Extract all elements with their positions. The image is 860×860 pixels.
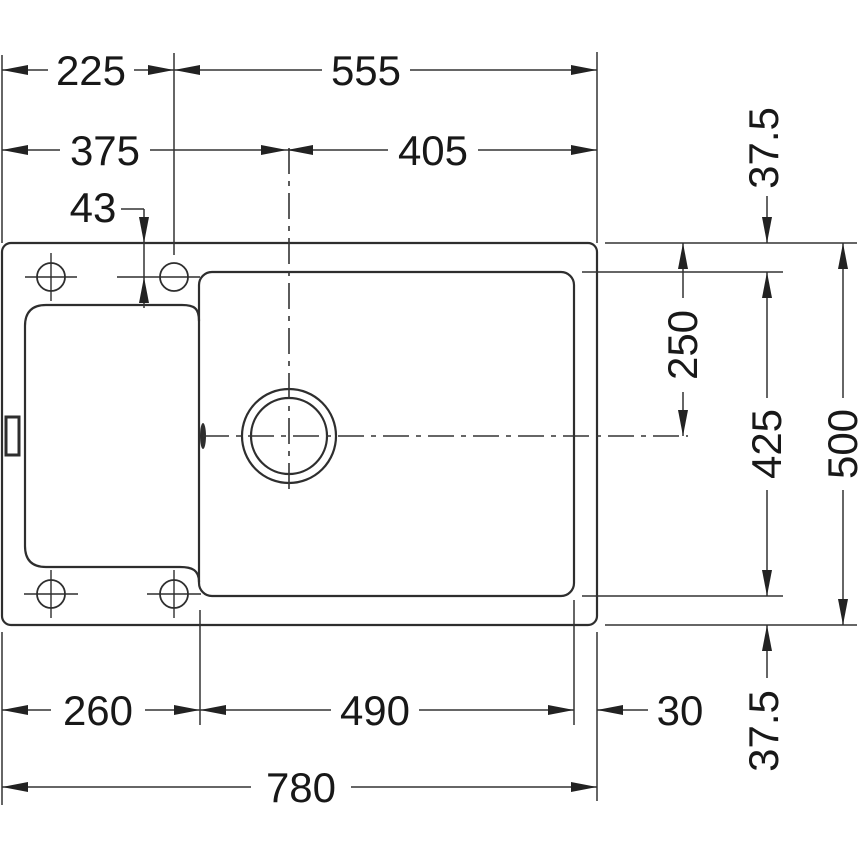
dim-label-37-5-bottom: 37.5 xyxy=(740,690,787,772)
dim-label-30: 30 xyxy=(657,687,704,734)
dim-label-260: 260 xyxy=(63,687,133,734)
dim-label-37-5-top: 37.5 xyxy=(740,107,787,189)
overflow-slot xyxy=(6,417,19,455)
dimension-lines xyxy=(2,70,843,787)
drainer-area xyxy=(25,305,199,582)
main-bowl xyxy=(199,272,574,596)
dim-label-375: 375 xyxy=(70,127,140,174)
dim-label-405: 405 xyxy=(398,127,468,174)
sink-dimension-drawing: 225 555 375 405 43 37.5 250 425 500 37.5… xyxy=(0,0,860,860)
dim-label-500: 500 xyxy=(819,409,860,479)
hole-crosshairs xyxy=(24,253,201,618)
drawing-canvas: 225 555 375 405 43 37.5 250 425 500 37.5… xyxy=(0,0,860,860)
dim-label-780: 780 xyxy=(266,764,336,811)
dim-label-425: 425 xyxy=(743,409,790,479)
dim-label-490: 490 xyxy=(340,687,410,734)
dim-label-225: 225 xyxy=(56,47,126,94)
dim-label-250: 250 xyxy=(659,310,706,380)
dim-label-43: 43 xyxy=(70,184,117,231)
centerlines xyxy=(203,148,688,493)
dimension-arrowheads xyxy=(2,65,848,792)
dim-label-555: 555 xyxy=(331,47,401,94)
